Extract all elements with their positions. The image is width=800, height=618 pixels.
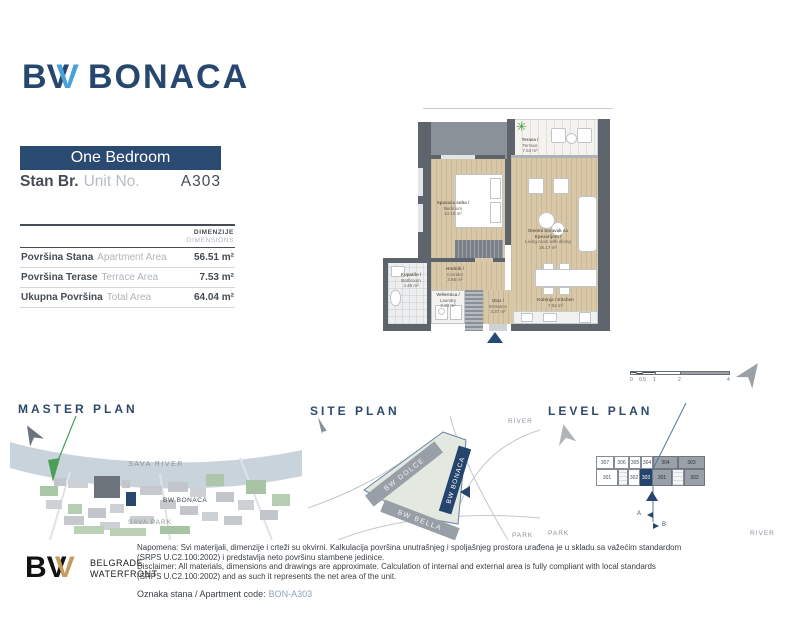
room-label-corridor: Hodnik / Corridor 3.66 m²: [439, 266, 471, 283]
unit-code: A303: [181, 173, 221, 191]
adjacent-terrace: [431, 122, 517, 159]
park-label: PARK: [512, 532, 533, 539]
river-label: RIVER: [750, 530, 775, 537]
room-area: 2.33 m²: [431, 303, 465, 309]
disclaimer-en-line2: (SRPS U.C2.100:2002) and as such it repr…: [137, 572, 795, 582]
room-area: 3.37 m²: [483, 309, 513, 315]
toilet: [390, 290, 401, 306]
unit-number-row: Stan Br. Unit No. A303: [20, 173, 221, 191]
scale-segment: [680, 371, 730, 375]
wall-corridor-top: [431, 258, 505, 262]
room-area: 7.53 m²: [515, 148, 545, 154]
dining-chair: [559, 287, 570, 295]
scale-tick: 4: [727, 377, 730, 383]
site-plan: SITE PLAN BW DOLCE BW BELLA BW BONACA RI…: [308, 398, 540, 540]
room-name-sr: Spavaća soba /: [433, 200, 473, 206]
row-label-sr: Ukupna Površina: [21, 292, 103, 303]
scale-segment: [642, 371, 656, 375]
washing-machine-door: [438, 308, 445, 315]
apartment-code-label: Oznaka stana / Apartment code:: [137, 589, 266, 599]
room-area: 14.10 m²: [433, 211, 473, 217]
scale-bar: 0 0.5 1 2 4: [630, 371, 730, 387]
room-area: 4.46 m²: [397, 283, 425, 289]
sava-park-label: SAVA PARK: [128, 519, 172, 526]
unit-label-sr: Stan Br.: [20, 173, 79, 191]
disclaimer: Napomena: Svi materijali, dimenzije i cr…: [137, 543, 795, 581]
row-label-en: Terrace Area: [102, 272, 159, 283]
scale-segment: [655, 371, 681, 375]
table-row: Površina Terase Terrace Area 7.53 m²: [20, 268, 235, 288]
logo-letter-v-gold: V: [55, 551, 75, 584]
wall-bottom: [511, 324, 610, 331]
master-plan-map: SAVA RIVER BW BONACA SAVA PARK: [10, 416, 302, 540]
room-label-laundry: Vešernica / Laundry 2.33 m²: [431, 292, 465, 309]
row-label-sr: Površina Terase: [21, 272, 98, 283]
scale-tick: 0.5: [639, 377, 646, 383]
pillow: [490, 202, 501, 223]
room-name-sr: Dnevni boravak sa trpezarijom /: [522, 228, 574, 239]
armchair: [553, 178, 569, 194]
apartment-code-row: Oznaka stana / Apartment code:BON-A303: [137, 589, 312, 599]
wardrobe: [455, 240, 503, 260]
scale-tick: 2: [678, 377, 681, 383]
room-label-entrance: Ulaz / Entrance 3.37 m²: [483, 298, 513, 315]
terrace-chair: [551, 128, 566, 143]
site-plan-map: BW DOLCE BW BELLA BW BONACA: [308, 416, 540, 540]
room-area: 7.04 m²: [533, 303, 578, 309]
row-value: 64.04 m²: [194, 292, 234, 303]
section-label-a: A: [637, 511, 641, 517]
dimensions-table: DIMENZIJE DIMENSIONS Površina Stana Apar…: [20, 224, 235, 308]
unit-type-banner: One Bedroom: [20, 146, 221, 170]
apartment-sheet: BVVBONACA One Bedroom Stan Br. Unit No. …: [0, 0, 800, 618]
row-label-en: Apartment Area: [97, 252, 166, 263]
header-dimensions: DIMENSIONS: [21, 237, 234, 245]
row-label-sr: Površina Stana: [21, 252, 93, 263]
armchair: [528, 178, 544, 194]
room-label-bedroom: Spavaća soba / Bedroom 14.10 m²: [433, 200, 473, 217]
scale-tick: 1: [653, 377, 656, 383]
table-row: Ukupna Površina Total Area 64.04 m²: [20, 288, 235, 308]
pillow: [490, 178, 501, 199]
level-plan: LEVEL PLAN 307 306 305 304 304 303 301 3…: [546, 398, 800, 540]
fridge: [579, 312, 591, 323]
master-plan: MASTER PLAN: [10, 398, 302, 540]
level-plan-annotations: [546, 398, 800, 540]
sava-river-label: SAVA RIVER: [128, 461, 184, 468]
shaft: [465, 290, 483, 331]
wall-bathroom-bottom: [383, 324, 431, 331]
unit-type-label: One Bedroom: [71, 149, 171, 167]
logo-letter-v-blue: V: [56, 58, 80, 96]
terrace-chair: [577, 128, 592, 143]
facade-line: [423, 108, 613, 109]
room-label-kitchen: Kuhinja / Kitchen 7.04 m²: [533, 297, 578, 308]
kitchen-sink: [521, 313, 533, 322]
room-label-terrace: Terasa / Terrace 7.53 m²: [515, 137, 545, 154]
disclaimer-sr-line2: (SRPS U.C2.100:2002) i predstavlja neto …: [137, 553, 795, 563]
dimensions-table-header: DIMENZIJE DIMENSIONS: [20, 226, 235, 248]
room-label-living: Dnevni boravak sa trpezarijom / Living r…: [522, 228, 574, 250]
entrance-arrow-icon: [487, 332, 503, 343]
room-area: 26.17 m²: [522, 245, 574, 251]
table-row: Površina Stana Apartment Area 56.51 m²: [20, 248, 235, 268]
logo-letter-b: B: [22, 58, 47, 96]
logo-letter-b: B: [25, 551, 47, 584]
master-plan-title: MASTER PLAN: [18, 402, 138, 416]
row-label-en: Total Area: [107, 292, 151, 303]
room-name-sr: Vešernica /: [431, 292, 465, 298]
room-name-sr: Kuhinja / Kitchen: [533, 297, 578, 303]
dining-chair: [543, 287, 554, 295]
logo-name: BONACA: [88, 58, 249, 96]
disclaimer-en-line1: Disclaimer: All materials, dimensions an…: [137, 562, 795, 572]
bw-bonaca-label: BW BONACA: [163, 497, 207, 504]
river-label: RIVER: [508, 418, 533, 425]
wall-right: [598, 119, 610, 331]
park-label: PARK: [548, 530, 569, 537]
room-label-bathroom: Kupatilo / Bathroom 4.46 m²: [397, 272, 425, 289]
cooktop: [543, 313, 557, 322]
row-value: 56.51 m²: [194, 252, 234, 263]
door-gap: [475, 258, 493, 262]
north-arrow-icon: [735, 358, 767, 390]
window: [418, 168, 423, 196]
wall-terrace-pillar: [507, 119, 515, 159]
apartment-code-value: BON-A303: [269, 589, 313, 599]
row-value: 7.53 m²: [200, 272, 234, 283]
entrance-door: [489, 324, 507, 331]
window: [441, 155, 475, 159]
unit-label-en: Unit No.: [84, 173, 140, 191]
sofa: [578, 196, 597, 252]
belgrade-waterfront-logo: BVV: [25, 551, 75, 585]
room-area: 3.66 m²: [439, 277, 471, 283]
floor-plan: ✳ Terasa / Terrace 7.53 m² Spavaća soba …: [383, 108, 618, 348]
header-dimenzije: DIMENZIJE: [21, 229, 234, 237]
plant-icon: ✳: [516, 119, 527, 135]
terrace-table: [566, 133, 577, 144]
section-label-b: B: [662, 522, 666, 528]
dining-table: [535, 269, 597, 287]
window: [418, 204, 423, 232]
room-name-en: Living room with dining: [522, 239, 574, 245]
room-name-sr: Kupatilo /: [397, 272, 425, 278]
terrace-glass-wall: [511, 155, 598, 158]
scale-tick: 0: [630, 377, 633, 383]
bonaca-logo: BVVBONACA: [22, 58, 249, 97]
disclaimer-sr-line1: Napomena: Svi materijali, dimenzije i cr…: [137, 543, 795, 553]
north-arrow-icon: [312, 417, 328, 434]
